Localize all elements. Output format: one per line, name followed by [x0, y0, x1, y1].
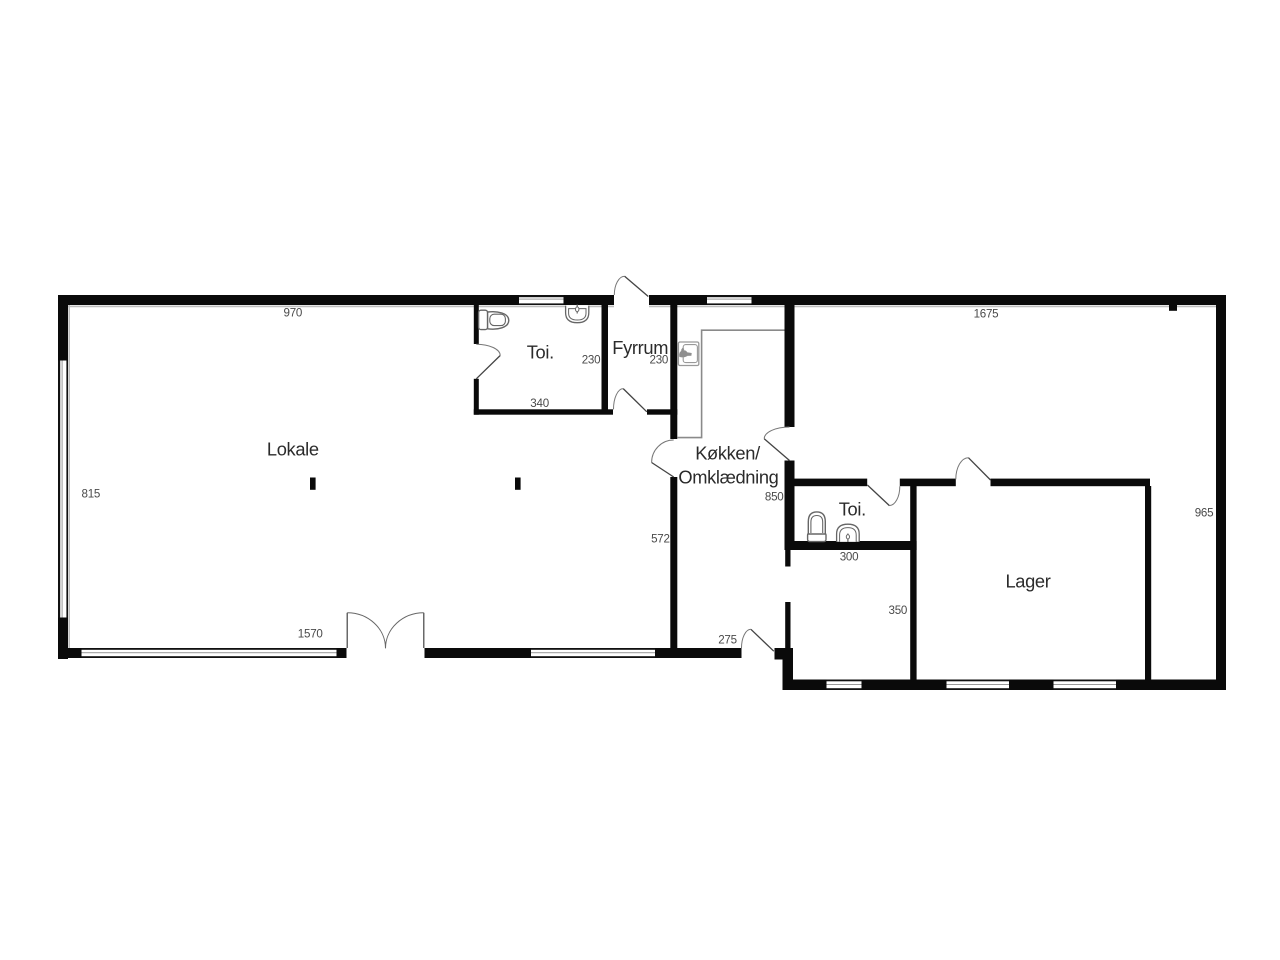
svg-text:Toi.: Toi.	[527, 342, 554, 363]
svg-text:815: 815	[82, 488, 101, 501]
svg-text:340: 340	[530, 397, 549, 410]
svg-text:Køkken/: Køkken/	[695, 442, 761, 463]
svg-text:Lager: Lager	[1005, 570, 1050, 591]
svg-text:230: 230	[650, 354, 669, 367]
svg-text:970: 970	[284, 306, 303, 319]
svg-text:572: 572	[651, 533, 670, 546]
svg-text:Toi.: Toi.	[839, 498, 866, 519]
svg-text:275: 275	[718, 633, 737, 646]
svg-text:350: 350	[889, 604, 908, 617]
svg-text:Lokale: Lokale	[267, 439, 319, 460]
svg-text:230: 230	[582, 353, 601, 366]
svg-text:1570: 1570	[298, 628, 323, 641]
svg-text:1675: 1675	[974, 308, 999, 321]
svg-text:300: 300	[840, 551, 859, 564]
svg-text:850: 850	[765, 491, 784, 504]
svg-text:Omklædning: Omklædning	[678, 466, 778, 487]
svg-text:965: 965	[1195, 506, 1214, 519]
